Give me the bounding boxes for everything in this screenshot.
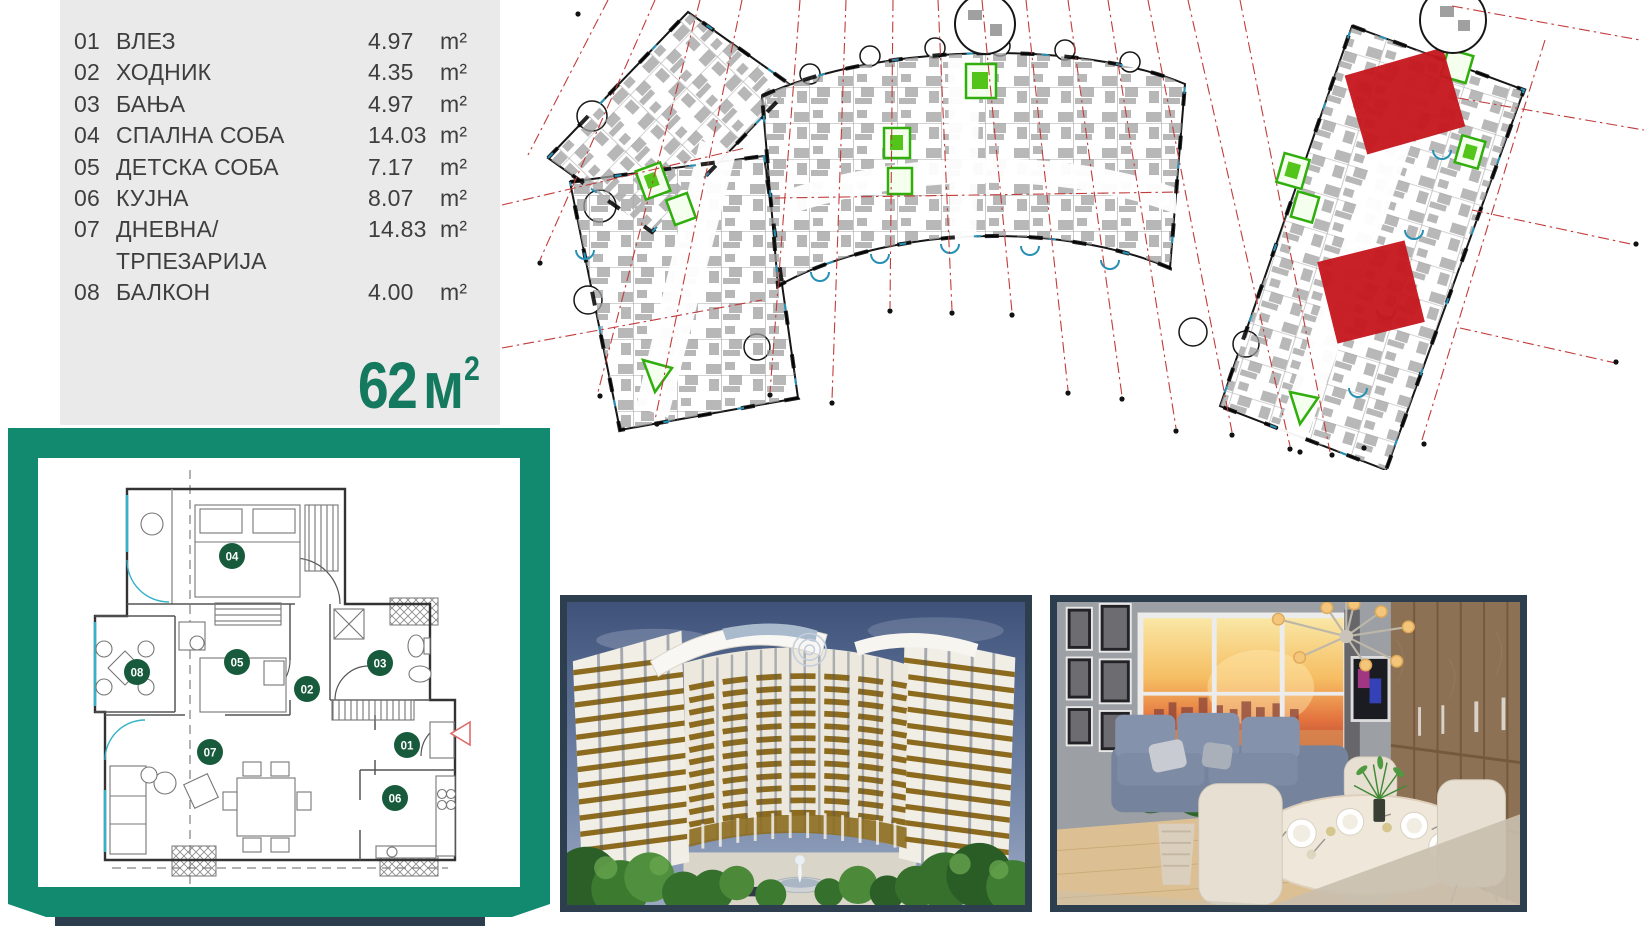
frame-shadow-bar <box>55 917 485 926</box>
right-tower <box>899 634 1015 884</box>
room-marker-03: 03 <box>367 650 393 676</box>
room-row: 04 СПАЛНА СОБА 14.03 m² <box>74 120 490 151</box>
room-unit: m² <box>440 120 490 151</box>
interior-dining-photo <box>1050 595 1527 912</box>
room-label: БАЛКОН <box>116 277 368 308</box>
room-list-panel: 01 ВЛЕЗ 4.97 m² 02 ХОДНИК 4.35 m² 03 БАЊ… <box>60 0 500 425</box>
room-marker-04: 04 <box>219 543 245 569</box>
room-number: 06 <box>74 183 116 214</box>
building-exterior-scene <box>567 602 1025 905</box>
room-unit: m² <box>440 183 490 214</box>
room-label: БАЊА <box>116 89 368 120</box>
room-unit: m² <box>440 57 490 88</box>
room-area: 4.97 <box>368 89 440 120</box>
room-area: 14.03 <box>368 120 440 151</box>
room-area: 8.07 <box>368 183 440 214</box>
room-unit: m² <box>440 214 490 245</box>
room-number: 01 <box>74 26 116 57</box>
site-plan-drawing <box>500 0 1644 470</box>
building-exterior-photo <box>560 595 1032 912</box>
room-row: 03 БАЊА 4.97 m² <box>74 89 490 120</box>
room-number: 05 <box>74 152 116 183</box>
svg-text:07: 07 <box>204 748 217 760</box>
room-row: 01 ВЛЕЗ 4.97 m² <box>74 26 490 57</box>
room-unit: m² <box>440 277 490 308</box>
room-row: 05 ДЕТСКА СОБА 7.17 m² <box>74 152 490 183</box>
apartment-floorplan: 04 05 08 03 02 <box>38 458 520 887</box>
total-area-sup: 2 <box>464 350 478 388</box>
room-label: ДНЕВНА/ТРПЕЗАРИЈА <box>116 214 368 277</box>
room-number: 03 <box>74 89 116 120</box>
room-marker-02: 02 <box>294 676 320 702</box>
svg-text:02: 02 <box>301 685 314 697</box>
room-row: 02 ХОДНИК 4.35 m² <box>74 57 490 88</box>
svg-text:06: 06 <box>389 794 402 806</box>
apartment-floorplan-frame: 04 05 08 03 02 <box>8 428 550 917</box>
room-row: 07 ДНЕВНА/ТРПЕЗАРИЈА 14.83 m² <box>74 214 490 277</box>
room-area: 4.35 <box>368 57 440 88</box>
room-number: 08 <box>74 277 116 308</box>
room-list: 01 ВЛЕЗ 4.97 m² 02 ХОДНИК 4.35 m² 03 БАЊ… <box>74 26 490 309</box>
room-label: СПАЛНА СОБА <box>116 120 368 151</box>
room-number: 04 <box>74 120 116 151</box>
total-area-unit: м <box>423 348 462 422</box>
svg-text:03: 03 <box>374 659 387 671</box>
svg-text:05: 05 <box>231 658 244 670</box>
room-marker-06: 06 <box>382 785 408 811</box>
room-marker-01: 01 <box>394 732 420 758</box>
room-unit: m² <box>440 89 490 120</box>
room-area: 14.83 <box>368 214 440 245</box>
room-area: 4.00 <box>368 277 440 308</box>
room-label: ХОДНИК <box>116 57 368 88</box>
interior-dining-scene <box>1057 602 1520 905</box>
room-unit: m² <box>440 26 490 57</box>
room-marker-05: 05 <box>224 649 250 675</box>
room-marker-08: 08 <box>124 659 150 685</box>
room-label: КУЈНА <box>116 183 368 214</box>
room-marker-07: 07 <box>197 739 223 765</box>
total-area-value: 62 <box>358 348 416 422</box>
svg-text:08: 08 <box>131 668 144 680</box>
brochure-page: 01 ВЛЕЗ 4.97 m² 02 ХОДНИК 4.35 m² 03 БАЊ… <box>0 0 1644 926</box>
room-label: ВЛЕЗ <box>116 26 368 57</box>
total-area: 62м2 <box>358 352 478 430</box>
svg-text:04: 04 <box>226 552 239 564</box>
central-facade <box>683 647 908 849</box>
room-number: 07 <box>74 214 116 245</box>
room-number: 02 <box>74 57 116 88</box>
room-label: ДЕТСКА СОБА <box>116 152 368 183</box>
room-area: 4.97 <box>368 26 440 57</box>
room-row: 06 КУЈНА 8.07 m² <box>74 183 490 214</box>
room-row: 08 БАЛКОН 4.00 m² <box>74 277 490 308</box>
svg-text:01: 01 <box>401 741 414 753</box>
room-unit: m² <box>440 152 490 183</box>
room-area: 7.17 <box>368 152 440 183</box>
